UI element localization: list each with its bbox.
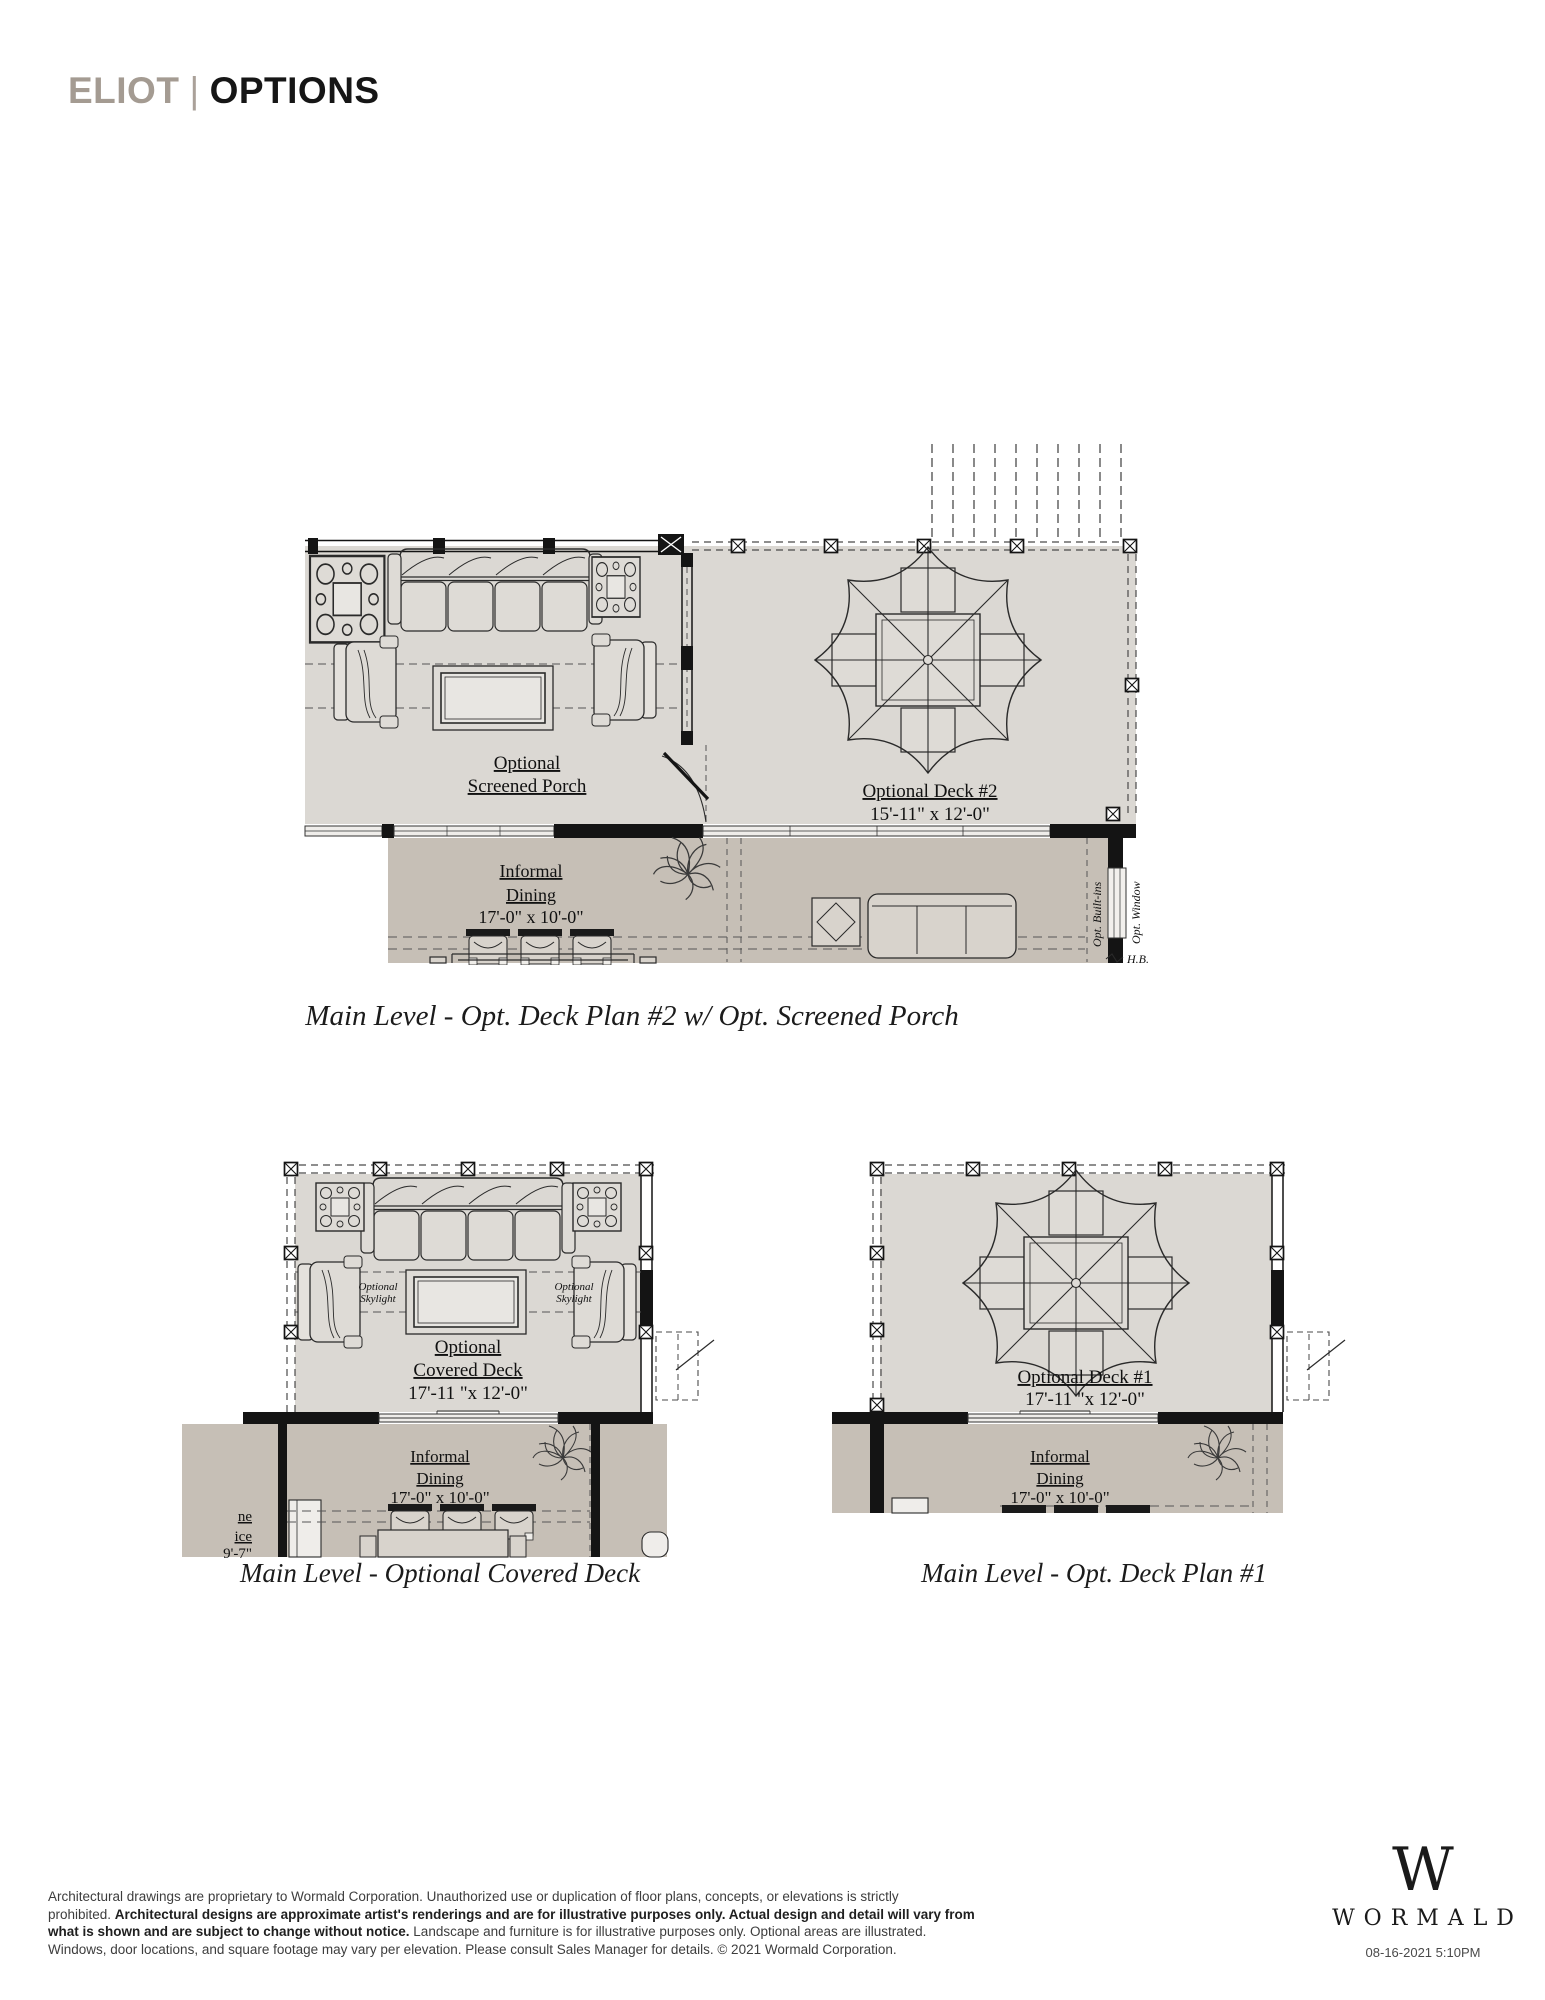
built-in-cabinet bbox=[289, 1500, 321, 1557]
porch-side-table-right bbox=[592, 557, 640, 617]
deck1-dims: 17'-11 "x 12'-0" bbox=[1025, 1389, 1145, 1410]
disclaimer-text: Architectural drawings are proprietary t… bbox=[48, 1888, 975, 1958]
covered-label-2: Covered Deck bbox=[413, 1360, 523, 1381]
opt-builtins-label: Opt. Built-ins bbox=[1090, 881, 1104, 947]
deck2-dims: 15'-11" x 12'-0" bbox=[870, 804, 990, 825]
deck-stairs bbox=[932, 444, 1121, 542]
porch-armchair-left bbox=[334, 636, 398, 728]
skylight-right-2: Skylight bbox=[556, 1293, 592, 1305]
skylight-left-2: Skylight bbox=[360, 1293, 396, 1305]
family-room-sofa bbox=[868, 894, 1016, 958]
covered-dining-1: Informal bbox=[410, 1447, 470, 1466]
title-divider: | bbox=[189, 70, 199, 111]
optional-stair-marker bbox=[1287, 1332, 1345, 1400]
opt-window-label: Opt. Window bbox=[1129, 881, 1143, 944]
porch-side-table-left bbox=[310, 556, 384, 642]
umbrella-table-deck1 bbox=[963, 1170, 1189, 1396]
plan-deck1: Optional Deck #1 17'-11 "x 12'-0" Inform… bbox=[820, 1150, 1365, 1562]
porch-coffee-table bbox=[433, 666, 553, 730]
covered-side-table-right bbox=[573, 1183, 621, 1231]
cut-text-1: ne bbox=[238, 1509, 253, 1525]
sheet-name: OPTIONS bbox=[210, 70, 380, 111]
disclaimer-line4: Windows, door locations, and square foot… bbox=[48, 1941, 975, 1959]
covered-dining-2: Dining bbox=[416, 1469, 464, 1488]
wormald-logo: W WORMALD 08-16-2021 5:10PM bbox=[1318, 1840, 1528, 1960]
porch-label-line2: Screened Porch bbox=[468, 776, 587, 797]
skylight-left-1: Optional bbox=[358, 1281, 397, 1293]
caption-covered-deck: Main Level - Optional Covered Deck bbox=[240, 1558, 640, 1589]
caption-deck1: Main Level - Opt. Deck Plan #1 bbox=[921, 1558, 1267, 1589]
wormald-logo-name: WORMALD bbox=[1318, 1906, 1528, 1931]
disclaimer-line1: Architectural drawings are proprietary t… bbox=[48, 1888, 975, 1906]
covered-side-table-left bbox=[316, 1183, 364, 1231]
caption-plan2: Main Level - Opt. Deck Plan #2 w/ Opt. S… bbox=[305, 1000, 958, 1033]
skylight-right-1: Optional bbox=[554, 1281, 593, 1293]
umbrella-table-deck2 bbox=[815, 547, 1041, 773]
covered-deck-right-wall bbox=[640, 1166, 653, 1412]
porch-label-line1: Optional bbox=[494, 753, 561, 774]
deck1-dining-dims: 17'-0" x 10'-0" bbox=[1010, 1488, 1109, 1507]
house-wall bbox=[305, 824, 1136, 838]
plan-covered-deck: Optional Skylight Optional Skylight Opti… bbox=[150, 1150, 730, 1562]
dining-table-cut bbox=[360, 1530, 526, 1557]
covered-coffee-table bbox=[406, 1270, 526, 1334]
floorplan-options-page: ELIOT|OPTIONS Optional Screened Porch bbox=[0, 0, 1545, 2000]
deck1-dining-1: Informal bbox=[1030, 1447, 1090, 1466]
cut-text-2: ice bbox=[235, 1529, 253, 1545]
covered-label-1: Optional bbox=[435, 1337, 502, 1358]
page-title: ELIOT|OPTIONS bbox=[68, 70, 380, 112]
fixture-cut bbox=[642, 1532, 668, 1557]
cabinet-cut bbox=[892, 1498, 928, 1513]
cut-room-left bbox=[182, 1424, 278, 1557]
bar-stools-cut bbox=[1002, 1505, 1150, 1513]
optional-stair-marker bbox=[656, 1332, 714, 1400]
dining-label-1: Informal bbox=[500, 861, 563, 881]
deck1-right-wall bbox=[1271, 1166, 1284, 1412]
dining-label-2: Dining bbox=[506, 885, 556, 905]
deck1-house-wall bbox=[832, 1411, 1283, 1424]
covered-dims: 17'-11 "x 12'-0" bbox=[408, 1383, 528, 1404]
dining-dims: 17'-0" x 10'-0" bbox=[478, 907, 583, 927]
deck2-label: Optional Deck #2 bbox=[862, 781, 997, 802]
covered-armchair-left bbox=[298, 1256, 362, 1348]
wormald-logo-mark: W bbox=[1318, 1840, 1528, 1900]
plan-deck2-screened-porch: Optional Screened Porch O bbox=[300, 333, 1180, 965]
covered-house-wall bbox=[243, 1411, 653, 1424]
deck1-dining-2: Dining bbox=[1036, 1469, 1084, 1488]
opt-window-frame bbox=[1108, 868, 1126, 938]
end-table bbox=[812, 898, 860, 946]
plan-name: ELIOT bbox=[68, 70, 179, 111]
deck1-label: Optional Deck #1 bbox=[1017, 1367, 1152, 1388]
hose-bib-label: H.B. bbox=[1126, 952, 1149, 965]
porch-screen-wall bbox=[305, 534, 684, 555]
disclaimer-line3: what is shown and are subject to change … bbox=[48, 1923, 975, 1941]
disclaimer-line2: prohibited. Architectural designs are ap… bbox=[48, 1906, 975, 1924]
print-timestamp: 08-16-2021 5:10PM bbox=[1318, 1945, 1528, 1960]
porch-armchair-right bbox=[592, 634, 656, 726]
